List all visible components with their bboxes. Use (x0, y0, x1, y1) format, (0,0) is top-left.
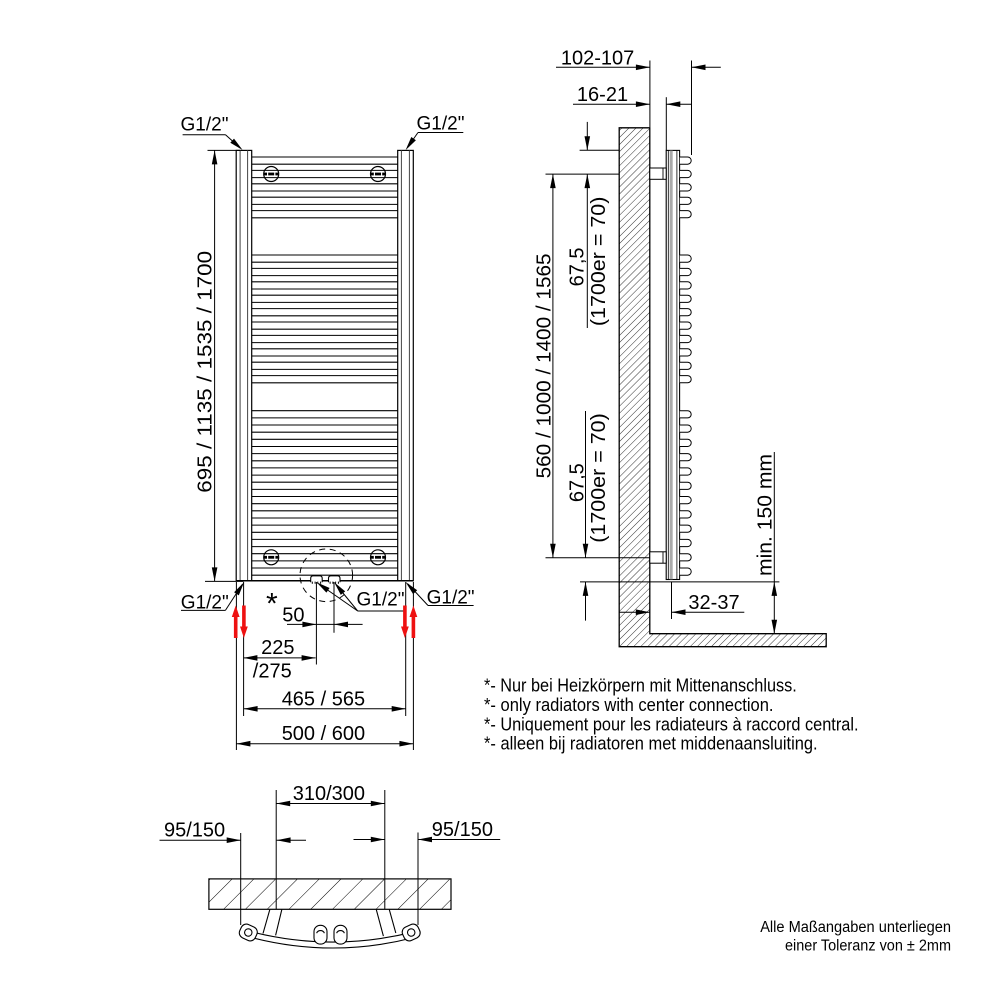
svg-text:695 / 1135 / 1535 / 1700: 695 / 1135 / 1535 / 1700 (195, 251, 217, 493)
svg-text:16-21: 16-21 (577, 84, 628, 106)
svg-text:min. 150 mm: min. 150 mm (755, 454, 777, 576)
svg-text:G1/2": G1/2" (357, 589, 405, 610)
svg-text:G1/2": G1/2" (181, 115, 229, 136)
svg-text:*- only radiators with center: *- only radiators with center connection… (484, 695, 774, 715)
svg-text:50: 50 (282, 604, 304, 626)
svg-text:*- Nur bei Heizkörpern mit Mit: *- Nur bei Heizkörpern mit Mittenanschlu… (484, 676, 797, 696)
svg-text:310/300: 310/300 (293, 783, 365, 805)
svg-text:95/150: 95/150 (164, 820, 225, 842)
svg-text:465 / 565: 465 / 565 (282, 689, 365, 711)
svg-text:225: 225 (261, 637, 294, 659)
svg-text:G1/2": G1/2" (417, 113, 465, 134)
svg-text:67,5: 67,5 (567, 463, 589, 502)
svg-text:Alle Maßangaben unterliegen: Alle Maßangaben unterliegen (760, 919, 951, 936)
svg-text:102-107: 102-107 (561, 47, 634, 69)
svg-text:(1700er = 70): (1700er = 70) (588, 413, 610, 543)
svg-text:*- alleen bij radiatoren met m: *- alleen bij radiatoren met middenaansl… (484, 734, 818, 754)
svg-text:500 / 600: 500 / 600 (282, 723, 365, 745)
svg-text:560 / 1000 / 1400 / 1565: 560 / 1000 / 1400 / 1565 (534, 253, 556, 478)
svg-text:67,5: 67,5 (567, 247, 589, 286)
svg-text:*- Uniquement pour les radiate: *- Uniquement pour les radiateurs à racc… (484, 714, 859, 734)
svg-text:einer Toleranz von ± 2mm: einer Toleranz von ± 2mm (785, 937, 951, 954)
svg-text:(1700er = 70): (1700er = 70) (588, 197, 610, 327)
svg-text:32-37: 32-37 (688, 592, 739, 614)
svg-text:*: * (266, 588, 278, 621)
svg-text:/275: /275 (253, 660, 292, 682)
svg-text:95/150: 95/150 (432, 819, 493, 841)
